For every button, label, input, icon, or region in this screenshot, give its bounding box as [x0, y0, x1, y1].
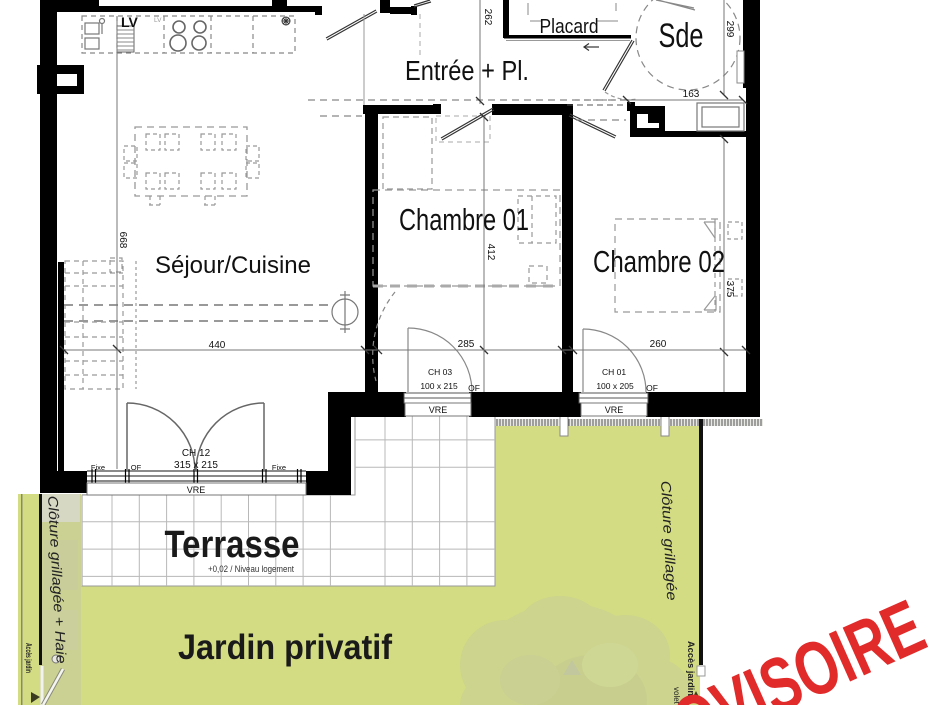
svg-text:100 x 205: 100 x 205	[596, 381, 634, 391]
svg-text:OF: OF	[131, 463, 142, 472]
svg-text:CH 01: CH 01	[602, 367, 626, 377]
svg-text:CH 12: CH 12	[182, 448, 211, 459]
svg-text:VRE: VRE	[429, 405, 448, 415]
svg-text:285: 285	[458, 339, 475, 350]
svg-text:668: 668	[117, 232, 128, 249]
svg-text:163: 163	[683, 89, 700, 100]
svg-text:Entrée + Pl.: Entrée + Pl.	[405, 55, 529, 86]
svg-text:Jardin privatif: Jardin privatif	[178, 628, 392, 667]
svg-text:Fixe: Fixe	[272, 463, 286, 472]
svg-text:Chambre 02: Chambre 02	[593, 244, 725, 279]
svg-text:100 x 215: 100 x 215	[420, 381, 458, 391]
svg-text:LV: LV	[121, 14, 139, 30]
svg-text:412: 412	[485, 244, 496, 261]
svg-text:VRE: VRE	[187, 485, 206, 495]
svg-text:260: 260	[650, 339, 667, 350]
svg-text:Accès jardin: Accès jardin	[24, 643, 33, 673]
svg-text:Placard: Placard	[540, 16, 599, 38]
svg-text:OF: OF	[646, 383, 658, 393]
svg-text:+0,02 / Niveau logement: +0,02 / Niveau logement	[208, 564, 294, 574]
svg-text:Chambre 01: Chambre 01	[399, 202, 529, 237]
svg-text:LV: LV	[154, 17, 162, 24]
svg-text:VRE: VRE	[605, 405, 624, 415]
svg-text:Sde: Sde	[659, 17, 704, 55]
svg-text:262: 262	[482, 9, 493, 26]
svg-text:315 x 215: 315 x 215	[174, 460, 218, 471]
svg-text:Fixe: Fixe	[91, 463, 105, 472]
svg-text:OF: OF	[468, 383, 480, 393]
svg-text:440: 440	[209, 340, 226, 351]
svg-text:CH 03: CH 03	[428, 367, 452, 377]
svg-text:375: 375	[724, 281, 735, 298]
svg-text:Séjour/Cuisine: Séjour/Cuisine	[155, 252, 311, 279]
svg-text:299: 299	[724, 21, 735, 38]
svg-text:Terrasse: Terrasse	[165, 524, 300, 566]
